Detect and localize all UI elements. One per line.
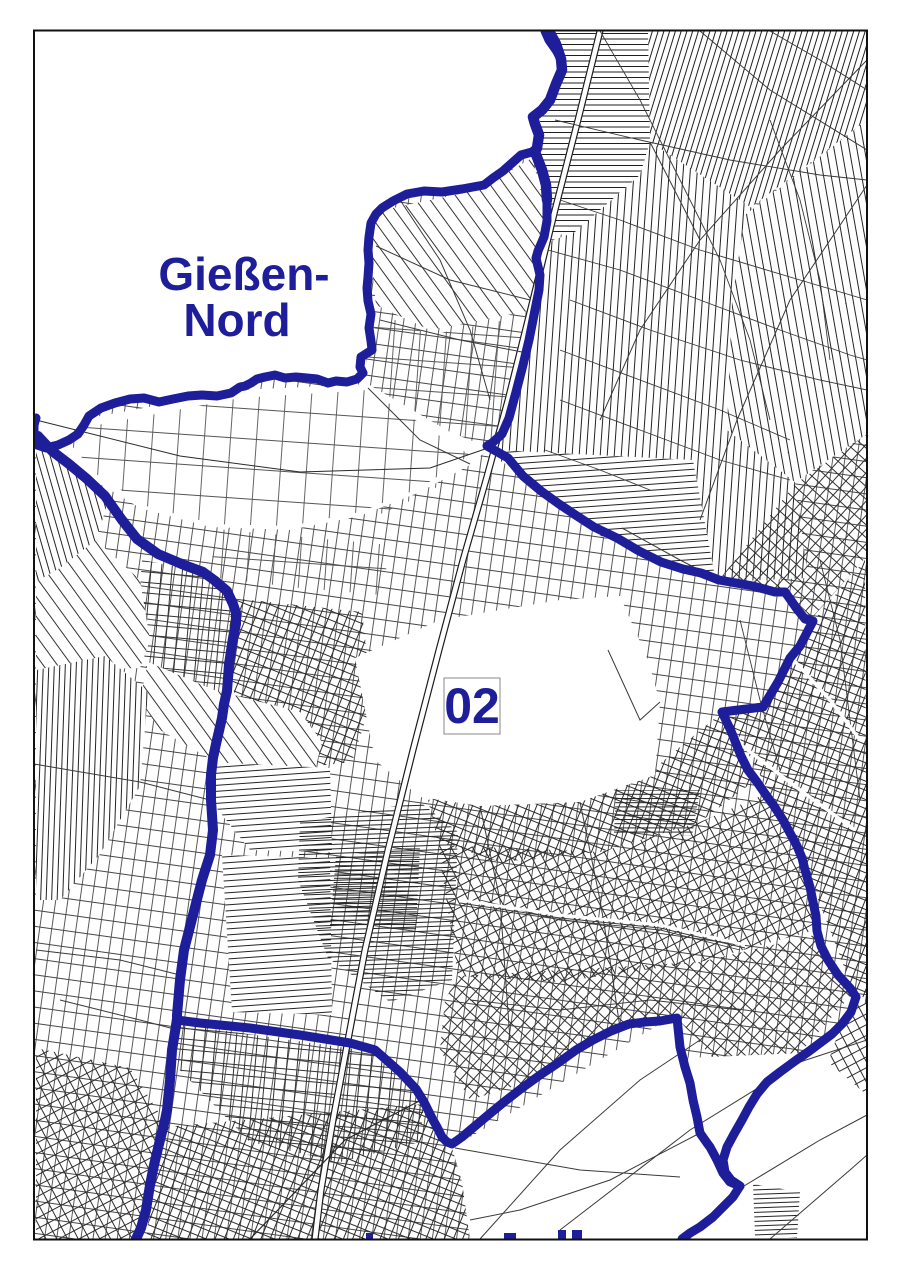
svg-text:02: 02 bbox=[444, 678, 500, 734]
svg-text:Gießen-: Gießen- bbox=[158, 248, 329, 300]
svg-text:Nord: Nord bbox=[183, 294, 290, 346]
